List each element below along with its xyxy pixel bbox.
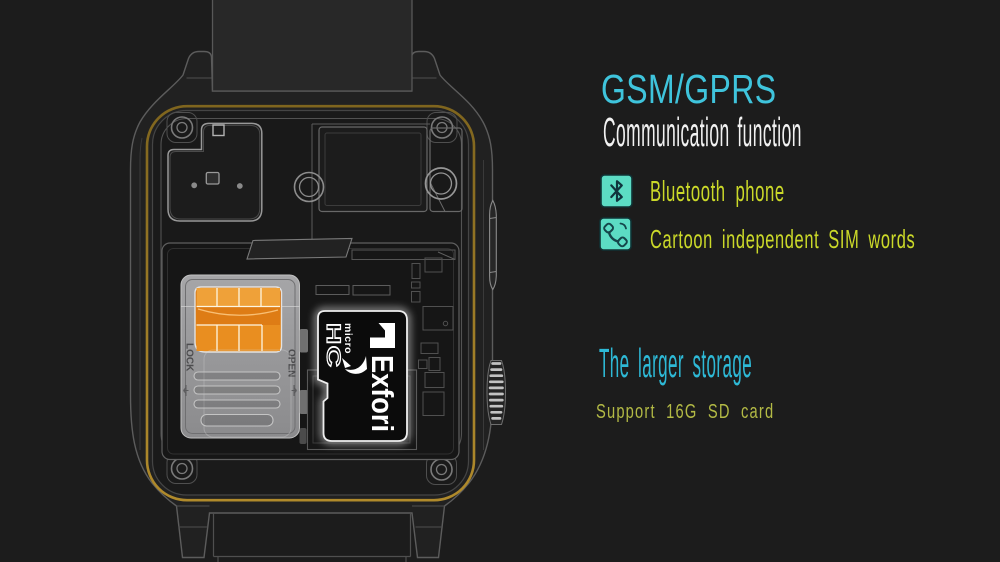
svg-text:HC: HC xyxy=(322,323,343,369)
svg-text:Exfori: Exfori xyxy=(365,355,400,432)
svg-text:LOCK: LOCK xyxy=(184,343,195,372)
